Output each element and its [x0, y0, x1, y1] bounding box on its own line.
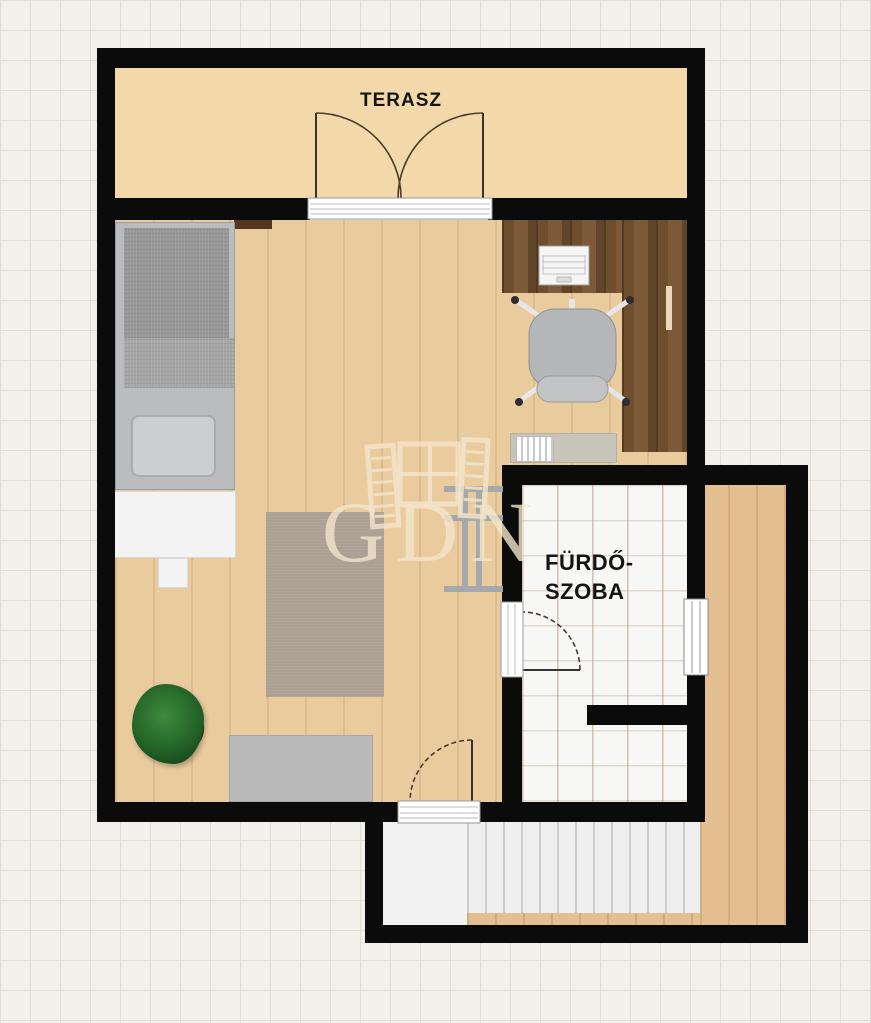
door-icon [398, 740, 480, 823]
bathroom-label-line2: SZOBA [545, 577, 634, 606]
floor-plan: TERASZ FÜRDŐ- SZOBA GDN [0, 0, 871, 1023]
window-icon [684, 599, 708, 675]
bathroom-label: FÜRDŐ- SZOBA [545, 548, 634, 606]
double-door-icon [308, 113, 492, 219]
laptop-icon [539, 246, 589, 285]
office-chair-icon [511, 296, 634, 406]
bathroom-label-line1: FÜRDŐ- [545, 548, 634, 577]
door-icon [501, 602, 580, 677]
watermark: GDN [322, 482, 544, 582]
terrace-label: TERASZ [115, 90, 687, 112]
